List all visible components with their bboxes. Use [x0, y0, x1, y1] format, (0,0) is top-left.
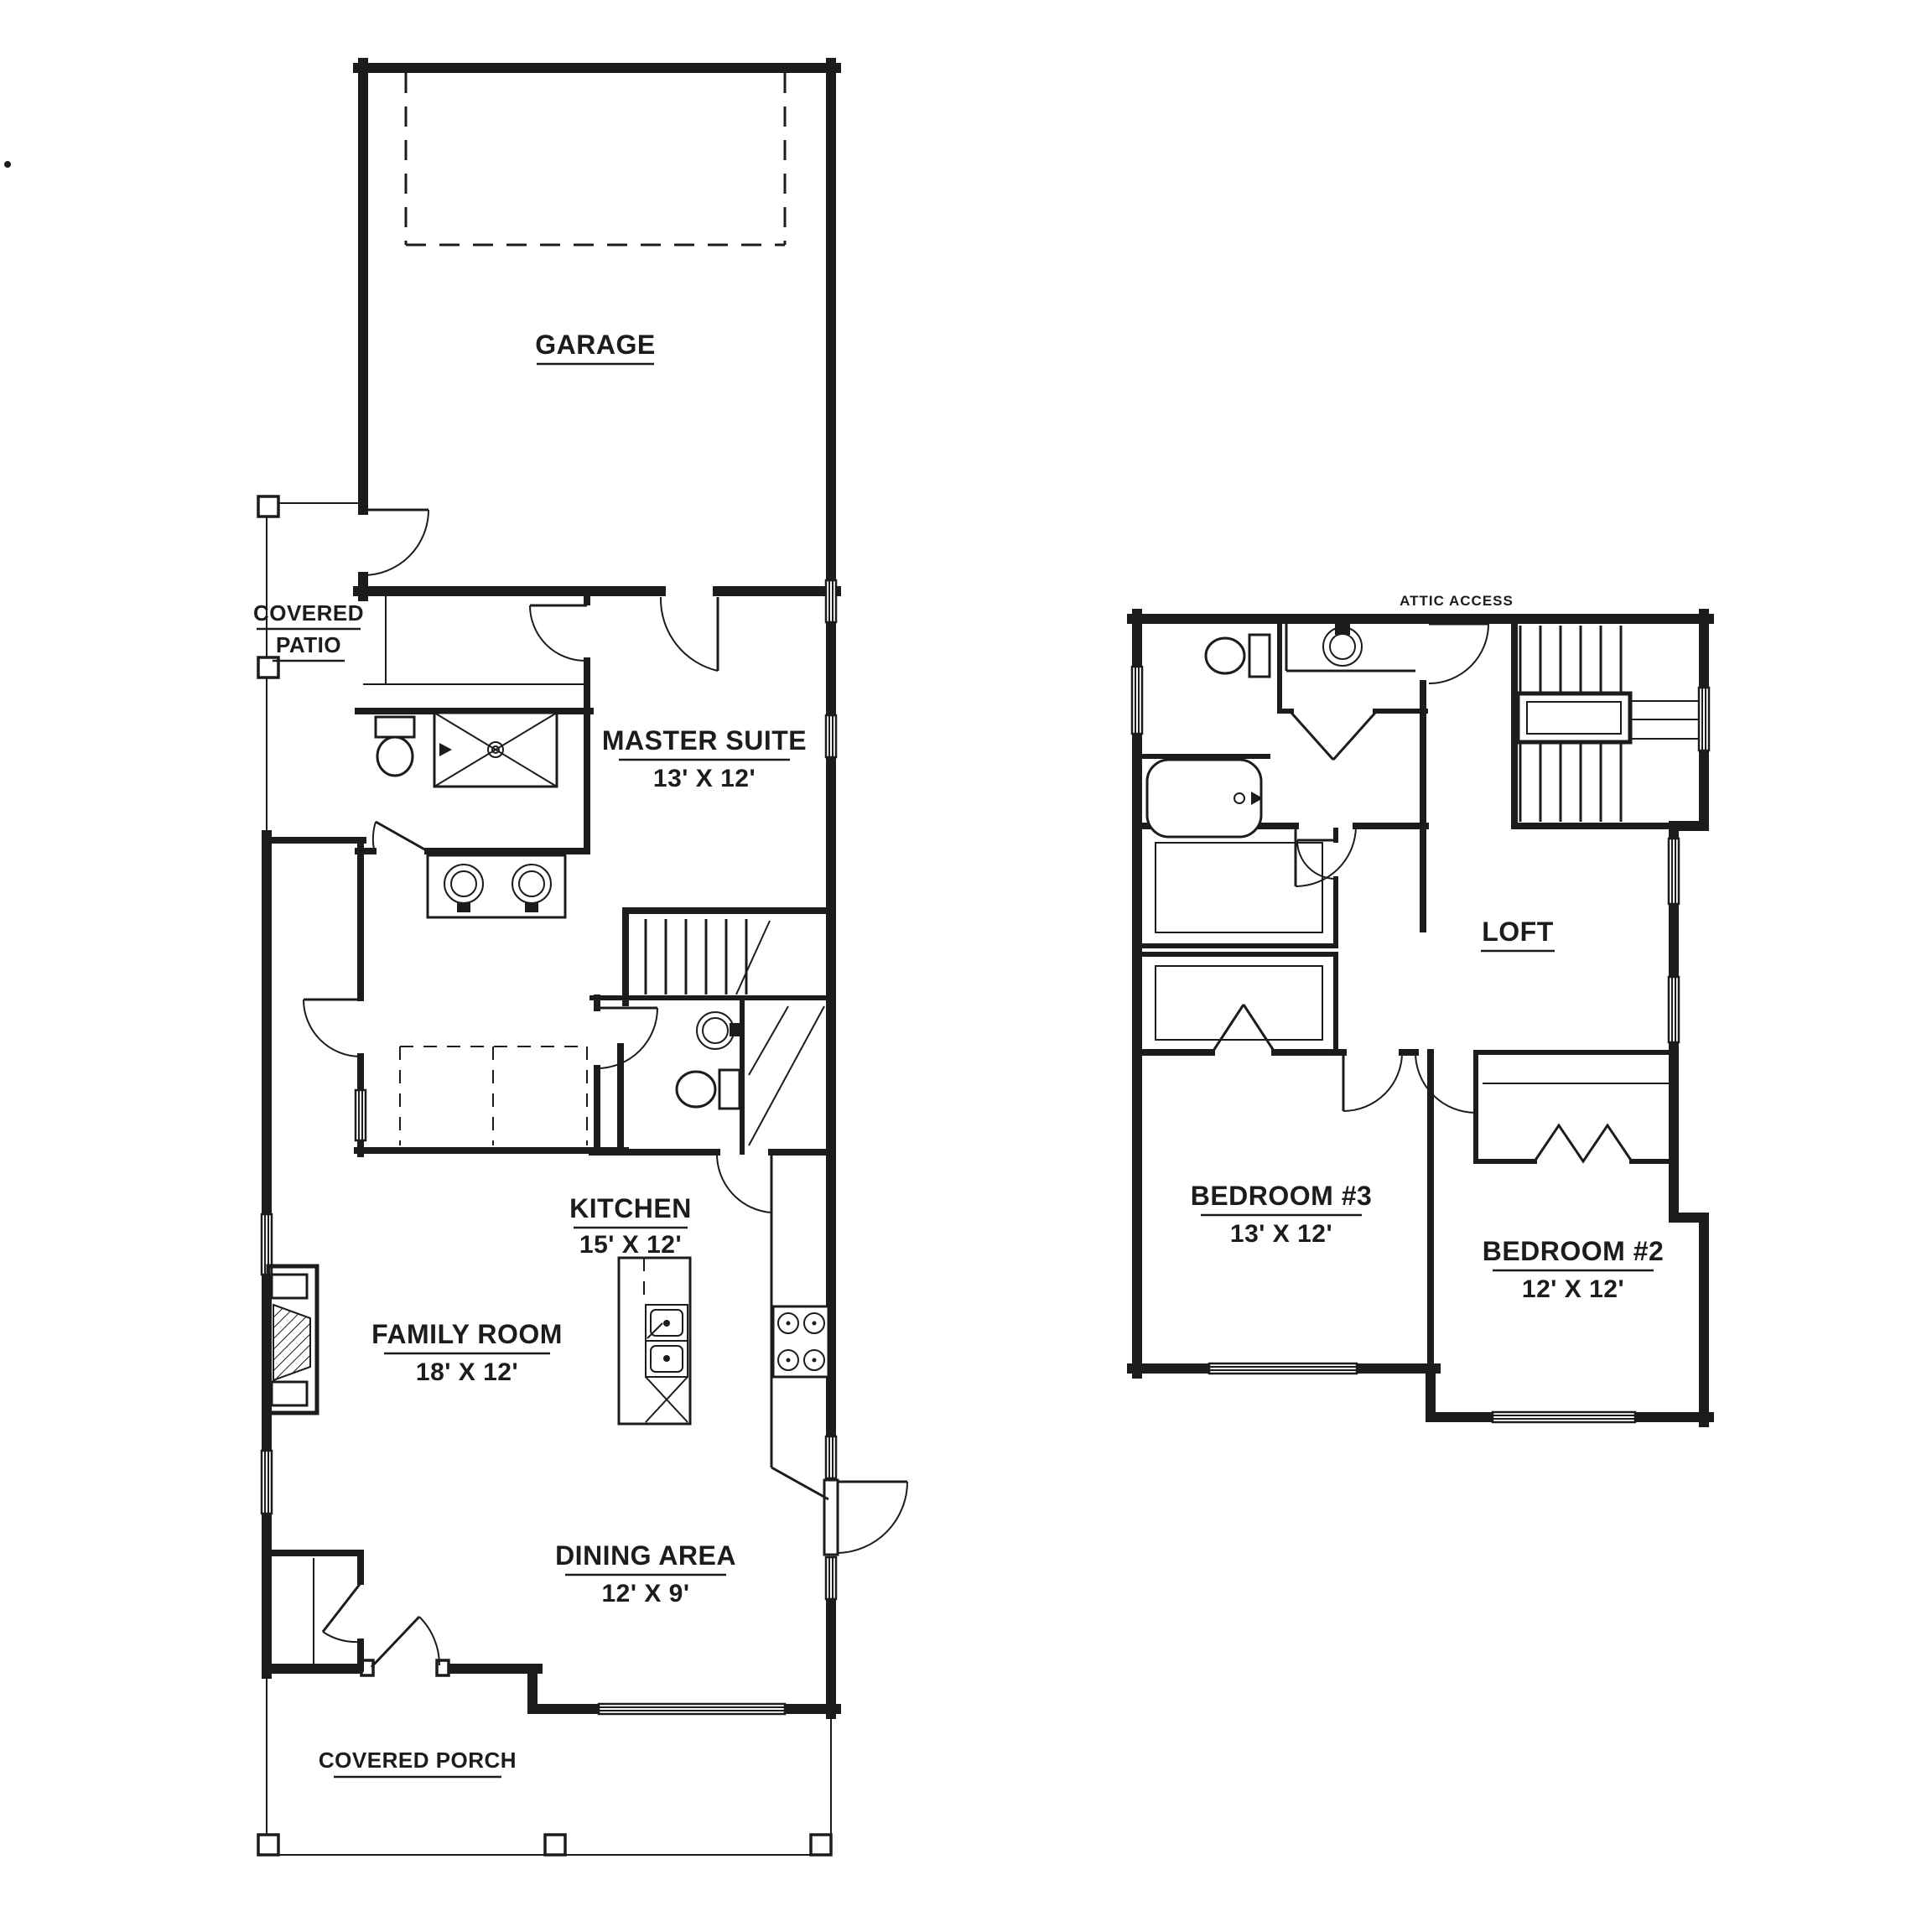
linen-closet-door [1297, 840, 1336, 879]
entry-closet-door [323, 1583, 361, 1642]
window-loft-right-1 [1669, 839, 1679, 904]
master-vanity-sinks [428, 855, 565, 917]
floor-plan-canvas: GARAGE COVERED PATIO MASTER SUITE 13' X … [0, 0, 1932, 1932]
kitchen-dims: 15' X 12' [579, 1231, 682, 1259]
first-floor-stairs [646, 919, 770, 995]
bedroom3-door [1343, 1052, 1402, 1111]
second-floor-stairs [1518, 626, 1699, 822]
covered-patio-label-line1: COVERED [253, 600, 364, 626]
bedroom3-label: BEDROOM #3 [1191, 1181, 1373, 1211]
garage-door-dashed-line [406, 73, 785, 245]
laundry-washer-dryer-dashed [400, 1046, 587, 1145]
covered-patio-label-line2: PATIO [276, 632, 341, 657]
exterior-kitchen-door [824, 1480, 907, 1555]
upstairs-sink [1323, 624, 1362, 666]
covered-patio-outline [258, 496, 363, 835]
range-cooktop [773, 1306, 828, 1377]
kitchen-hall-door [717, 1152, 771, 1213]
bedroom2-dims: 12' X 12' [1522, 1275, 1624, 1303]
master-suite-door [661, 597, 718, 671]
master-shower [434, 713, 557, 787]
front-door [361, 1617, 449, 1675]
bedroom2-label: BEDROOM #2 [1483, 1236, 1665, 1266]
covered-porch-label: COVERED PORCH [319, 1748, 517, 1773]
second-floor-plan: ATTIC ACCESS LOFT BEDROOM #3 13' X 12' B… [1132, 593, 1709, 1422]
window-bedroom2-bottom [1493, 1412, 1635, 1422]
window-bath-left [1132, 667, 1142, 734]
family-room-label: FAMILY ROOM [371, 1319, 563, 1349]
bedroom2-closet-bifold [1535, 1125, 1632, 1161]
upstairs-toilet [1206, 635, 1270, 677]
dining-area-label: DINING AREA [555, 1540, 736, 1571]
first-floor-labels: GARAGE COVERED PATIO MASTER SUITE 13' X … [253, 330, 807, 1777]
first-floor-plan: GARAGE COVERED PATIO MASTER SUITE 13' X … [253, 63, 907, 1855]
loft-label: LOFT [1482, 917, 1554, 947]
window-dining-bottom [599, 1704, 785, 1714]
window-loft-right-2 [1669, 977, 1679, 1042]
master-bath-toilet [376, 717, 414, 776]
window-master-1 [826, 580, 836, 622]
bathtub [1147, 760, 1263, 837]
bedroom3-dims: 13' X 12' [1230, 1220, 1332, 1248]
family-room-dims: 18' X 12' [416, 1358, 518, 1386]
bath-vroom-doors [1291, 713, 1375, 760]
attic-access-label: ATTIC ACCESS [1400, 593, 1514, 609]
master-bath-door [373, 822, 428, 851]
entry-closet [267, 1553, 361, 1669]
master-suite-dims: 13' X 12' [653, 765, 756, 792]
hall-attic-door [1429, 624, 1488, 683]
dining-area-dims: 12' X 9' [601, 1580, 689, 1607]
window-kitchen-right [826, 1436, 836, 1478]
bedroom3-closet-doors [1213, 1005, 1274, 1051]
powder-room-door [597, 1008, 657, 1068]
window-dining-right [826, 1557, 836, 1599]
powder-toilet [677, 1070, 740, 1109]
kitchen-island [619, 1258, 690, 1424]
window-stairs-right [1699, 688, 1709, 750]
stray-dot [4, 161, 11, 168]
garage-label: GARAGE [535, 330, 655, 360]
master-suite-label: MASTER SUITE [602, 725, 807, 756]
louver-laundry [356, 1090, 366, 1140]
patio-entry-door [363, 510, 428, 575]
window-master-2 [826, 715, 836, 757]
master-closet-door [530, 605, 587, 661]
bedroom2-door [1415, 1052, 1476, 1113]
powder-sink [697, 1012, 742, 1049]
fireplace [268, 1266, 317, 1413]
window-bedroom3-bottom [1209, 1363, 1357, 1374]
kitchen-label: KITCHEN [569, 1193, 692, 1223]
hall-door [304, 1000, 361, 1057]
window-family-2 [262, 1451, 272, 1514]
